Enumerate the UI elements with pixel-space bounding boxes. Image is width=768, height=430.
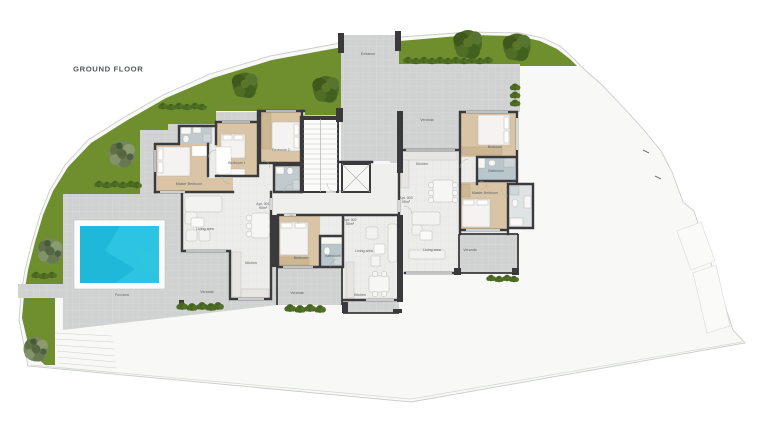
- svg-text:Living area: Living area: [423, 248, 441, 252]
- svg-text:90m²: 90m²: [259, 206, 268, 210]
- svg-text:Bedroom: Bedroom: [294, 256, 309, 260]
- svg-text:Bathroom: Bathroom: [325, 254, 341, 258]
- svg-text:Bedroom 2: Bedroom 2: [272, 148, 290, 152]
- svg-text:95m²: 95m²: [402, 200, 411, 204]
- svg-text:50m²: 50m²: [346, 222, 355, 226]
- svg-text:Living area: Living area: [196, 227, 214, 231]
- svg-text:Kitchen: Kitchen: [245, 261, 257, 265]
- svg-text:Veranda: Veranda: [290, 291, 303, 295]
- svg-text:GROUND FLOOR: GROUND FLOOR: [73, 65, 143, 74]
- svg-text:Entrance: Entrance: [361, 52, 375, 56]
- svg-text:Veranda: Veranda: [463, 248, 476, 252]
- svg-text:Veranda: Veranda: [420, 118, 433, 122]
- svg-text:Living area: Living area: [355, 249, 373, 253]
- svg-text:Veranda: Veranda: [200, 290, 213, 294]
- svg-text:Bedroom: Bedroom: [488, 145, 503, 149]
- svg-text:Bathroom: Bathroom: [488, 169, 504, 173]
- svg-text:Pool area: Pool area: [115, 293, 129, 297]
- svg-text:Master Bedroom: Master Bedroom: [176, 182, 203, 186]
- svg-text:Master Bedroom: Master Bedroom: [472, 191, 499, 195]
- svg-text:Bedroom 1: Bedroom 1: [228, 161, 246, 165]
- svg-text:Kitchen: Kitchen: [416, 162, 428, 166]
- svg-text:Kitchen: Kitchen: [354, 293, 366, 297]
